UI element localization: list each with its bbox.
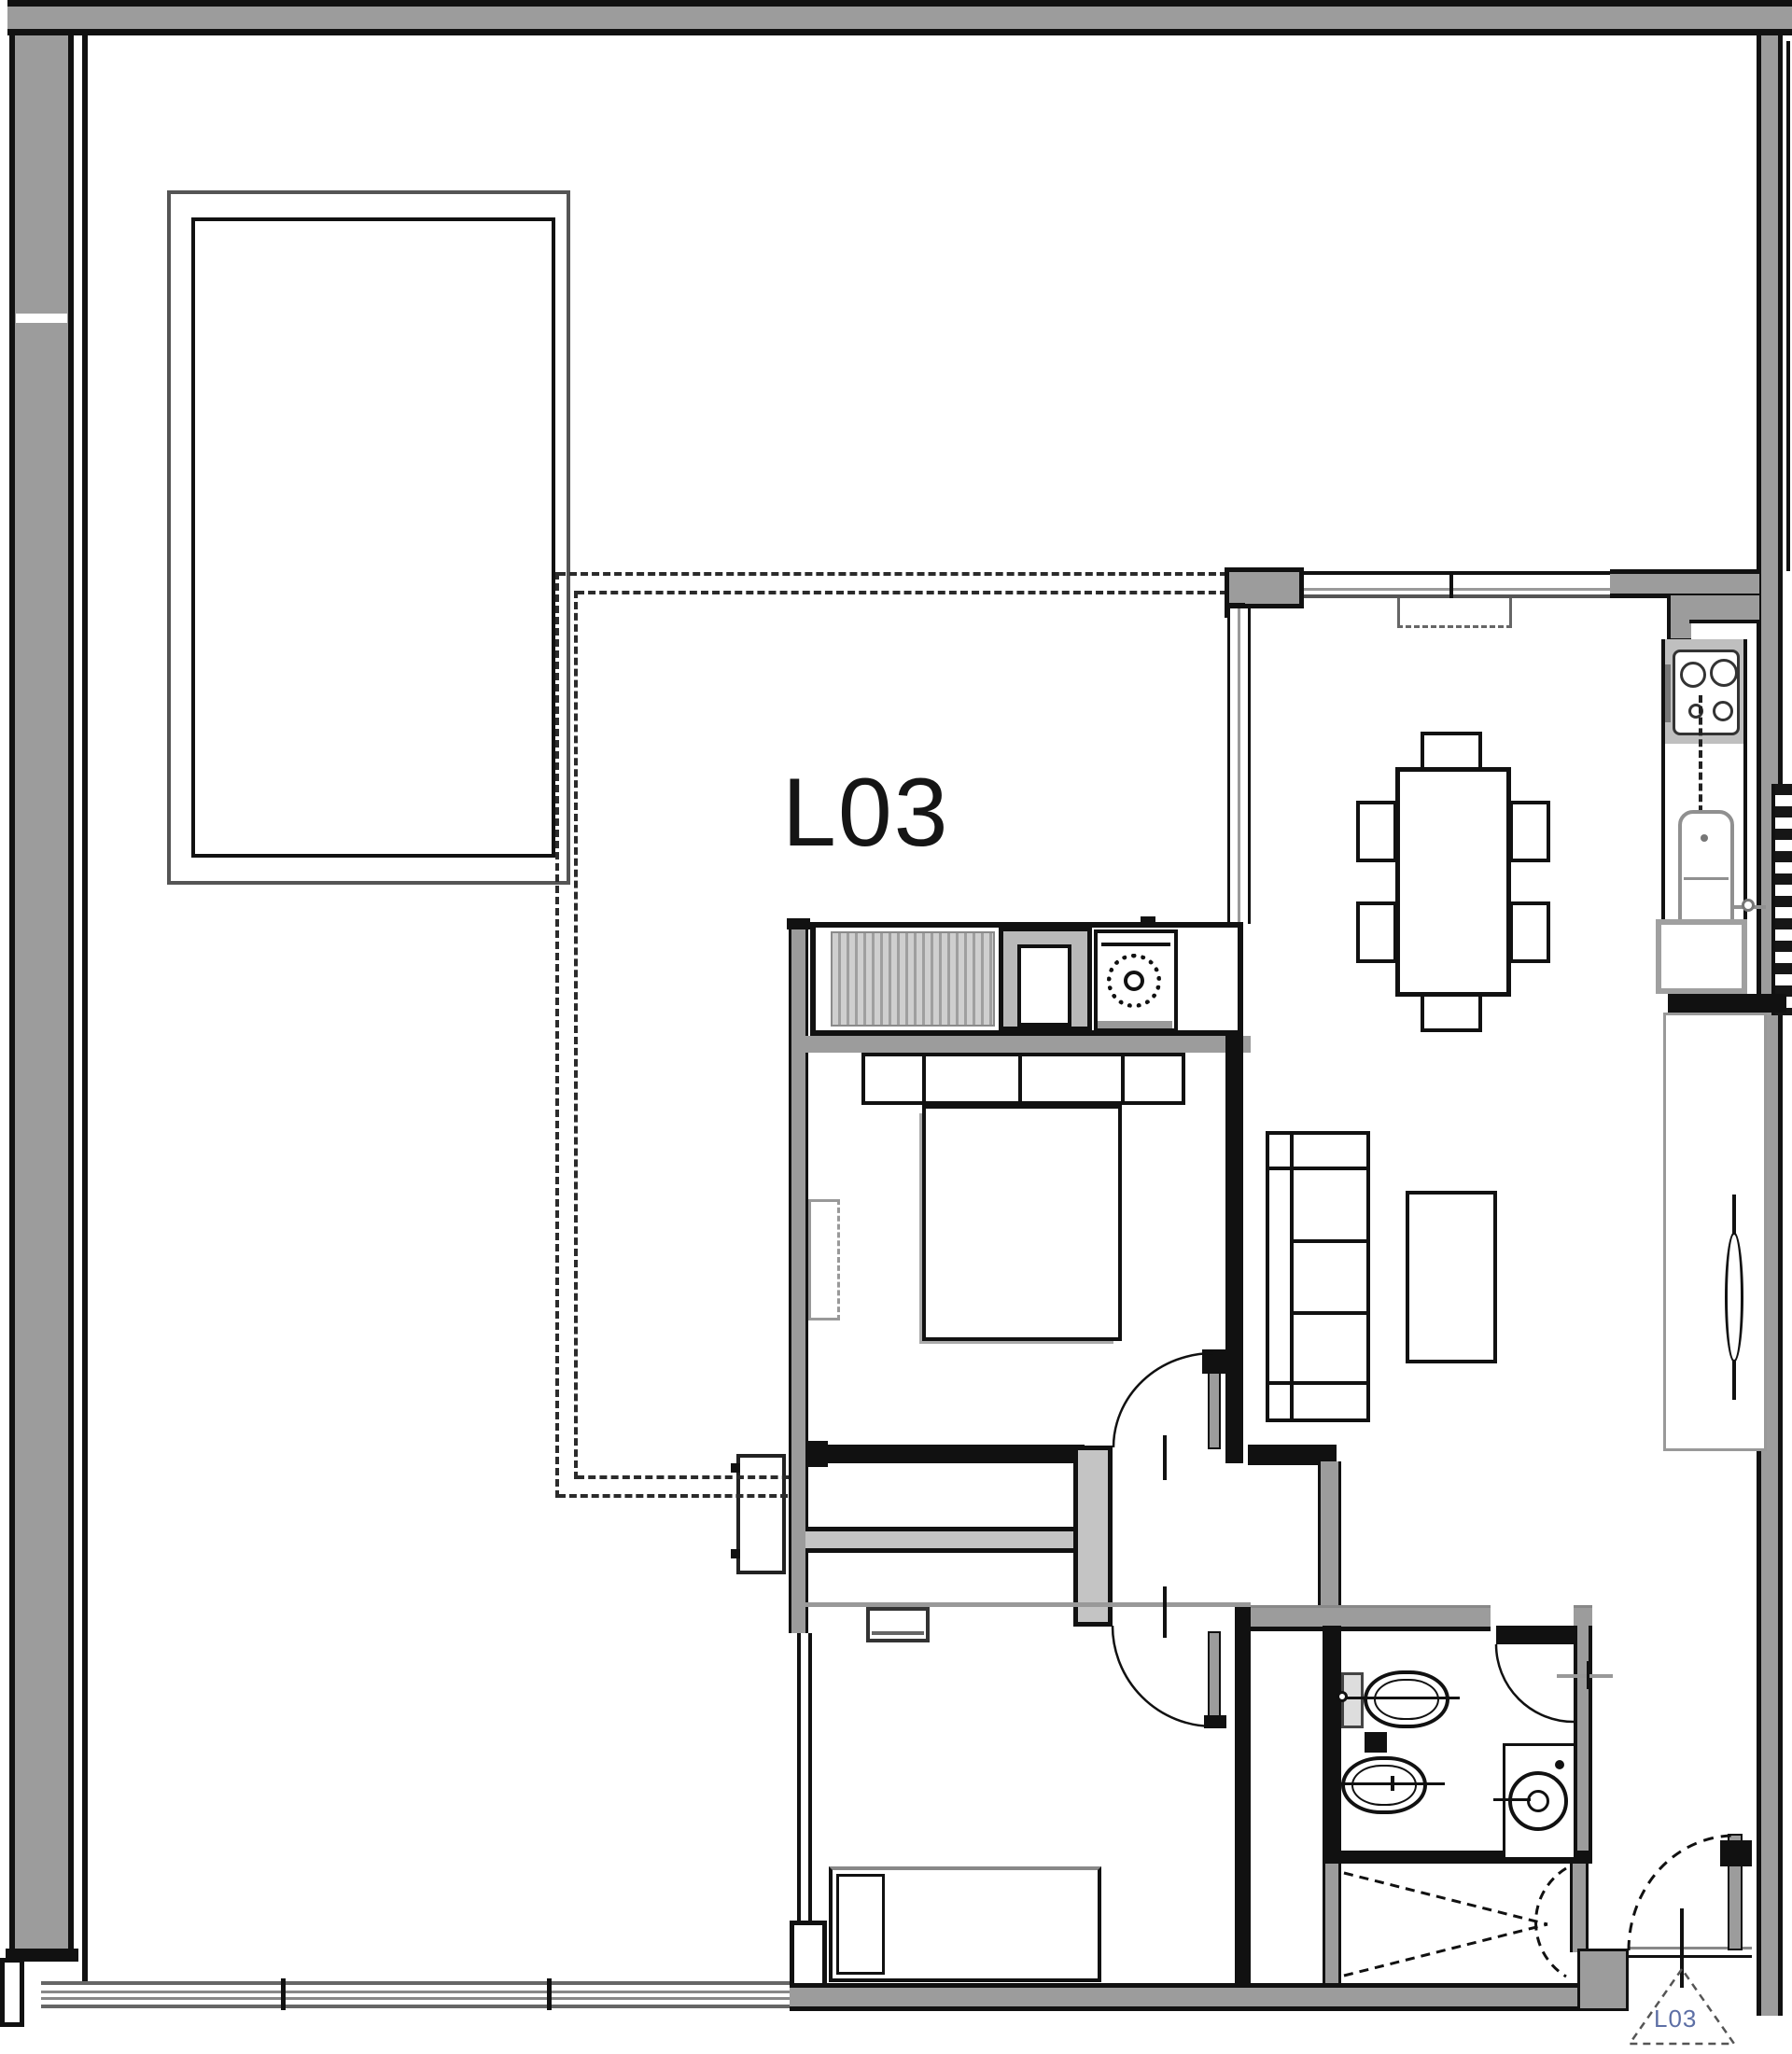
closet-x-door-arc: [1535, 1868, 1566, 1977]
bedroom2-door-swing-arc: [1113, 1626, 1213, 1726]
closet-x-diagonal: [1344, 1873, 1547, 1976]
entry-triangle-marker: [1630, 1969, 1734, 2044]
entry-door-swing-arc: [1629, 1836, 1734, 1950]
bathroom-door-swing-arc: [1496, 1644, 1574, 1722]
floor-plan: L03: [0, 0, 1792, 2054]
annotation-overlay: [0, 0, 1792, 2054]
bedroom1-door-swing-arc: [1113, 1353, 1213, 1447]
